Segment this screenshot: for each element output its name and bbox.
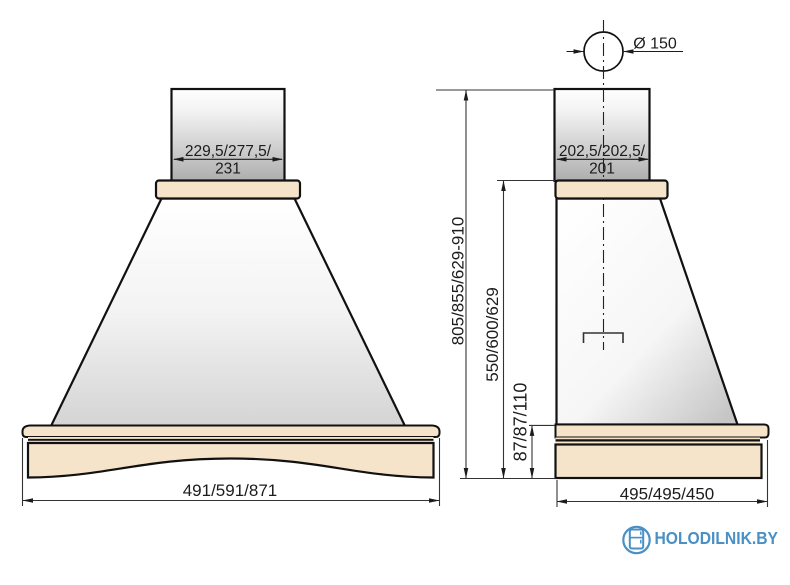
svg-text:87/87/110: 87/87/110 — [511, 383, 531, 462]
svg-text:231: 231 — [215, 161, 241, 178]
svg-text:Ø 150: Ø 150 — [633, 36, 677, 53]
svg-text:202,5/202,5/: 202,5/202,5/ — [559, 143, 646, 160]
svg-text:805/855/629-910: 805/855/629-910 — [449, 217, 468, 346]
svg-text:495/495/450: 495/495/450 — [620, 484, 715, 503]
svg-text:550/600/629: 550/600/629 — [483, 287, 502, 382]
svg-text:HOLODILNIK.BY: HOLODILNIK.BY — [655, 528, 779, 548]
svg-text:229,5/277,5/: 229,5/277,5/ — [185, 143, 272, 160]
svg-text:201: 201 — [589, 161, 615, 178]
svg-text:491/591/871: 491/591/871 — [183, 481, 278, 500]
